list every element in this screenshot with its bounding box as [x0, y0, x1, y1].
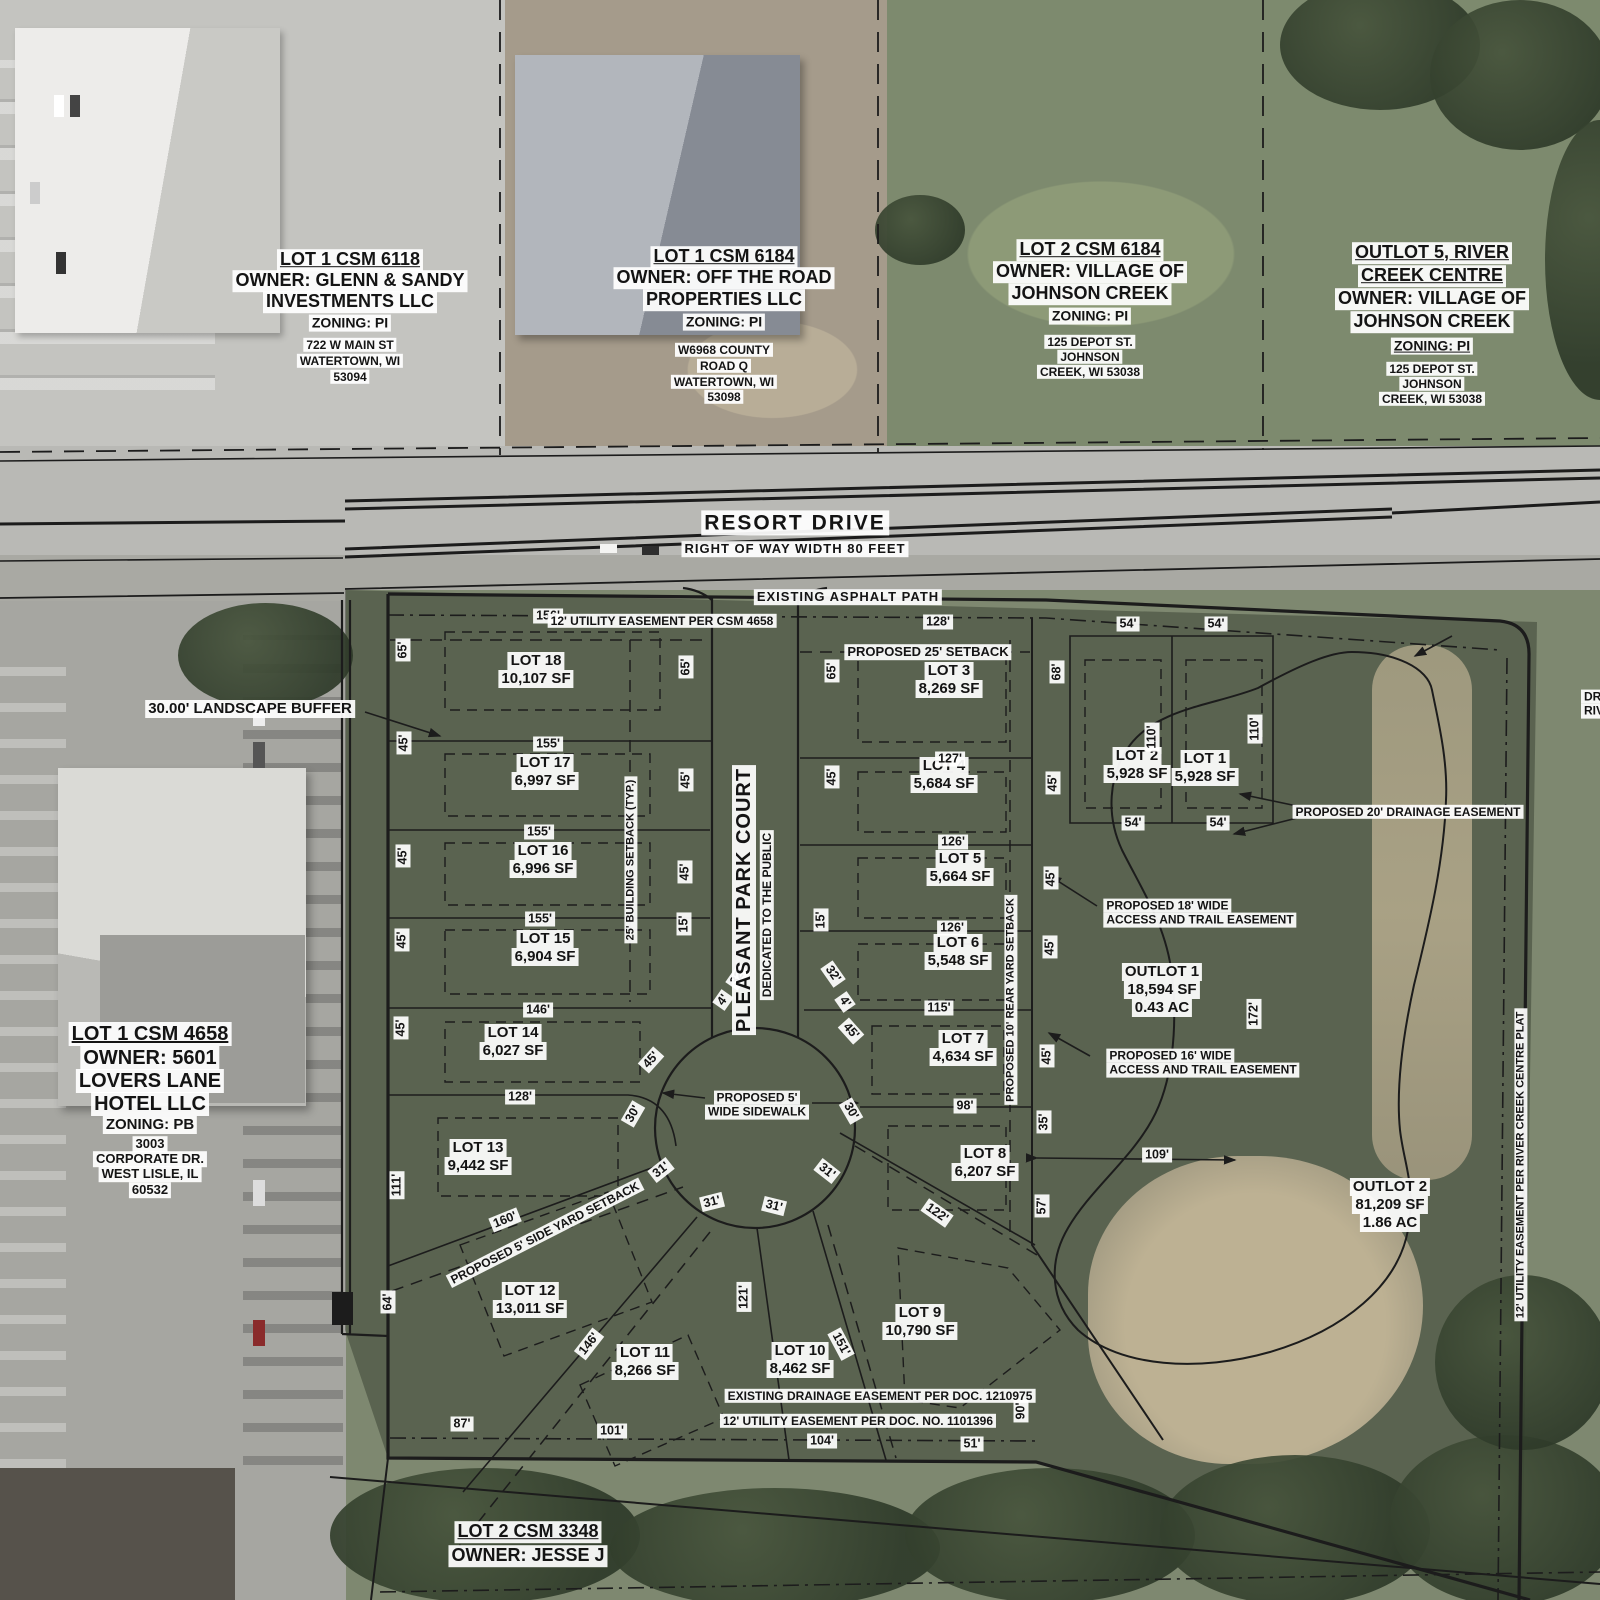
annotation-side-yard-setback: PROPOSED 5' SIDE YARD SETBACK [446, 1178, 645, 1289]
dimension-label-45-33: 45' [1043, 936, 1058, 959]
annotation-dedicated-to-the-public: DEDICATED TO THE PUBLIC [760, 830, 774, 1000]
annotation-proposed-18-access-trail-easement: PROPOSED 18' WIDEACCESS AND TRAIL EASEME… [1103, 899, 1296, 928]
dimension-label-146-21: 146' [523, 1003, 553, 1018]
annotation-existing-asphalt-path: EXISTING ASPHALT PATH [754, 589, 942, 605]
parcel-lot-1-csm-4658-line-4: ZONING: PB [103, 1116, 197, 1134]
dimension-label-31-51: 31' [699, 1192, 725, 1212]
parcel-lot-1-csm-6118-line-6: 53094 [330, 370, 369, 384]
dimension-label-109-48: 109' [1142, 1148, 1172, 1163]
lot-label-lot-10: LOT 108,462 SF [767, 1342, 834, 1378]
dimension-label-45-8: 45' [394, 1017, 409, 1040]
dimension-label-122-42: 122' [920, 1198, 953, 1227]
parcel-outlot-5-river-creek-centre-line-4: ZONING: PI [1391, 338, 1473, 355]
dimension-label-64-10: 64' [381, 1291, 396, 1314]
dimension-label-51-61: 51' [961, 1437, 984, 1452]
parcel-lot-1-csm-6184-line-0: LOT 1 CSM 6184 [650, 246, 797, 268]
parcel-outlot-5-river-creek-centre-line-1: CREEK CENTRE [1358, 265, 1506, 287]
parcel-lot-1-csm-6184-line-2: PROPERTIES LLC [643, 289, 805, 311]
parcel-lot-1-csm-6118-line-0: LOT 1 CSM 6118 [277, 249, 423, 271]
lot-label-lot-9: LOT 910,790 SF [882, 1304, 957, 1340]
annotation-rear-yard-setback: PROPOSED 10' REAR YARD SETBACK [1004, 895, 1017, 1105]
lot-label-lot-18: LOT 1810,107 SF [498, 652, 573, 688]
parcel-lot-2-csm-6184-line-5: JOHNSON [1057, 350, 1122, 364]
dimension-label-126-39: 126' [937, 921, 967, 936]
parcel-lot-1-csm-6184-line-6: WATERTOWN, WI [671, 375, 777, 389]
dimension-label-101-59: 101' [597, 1424, 627, 1439]
parcel-lot-1-csm-6184-line-7: 53098 [704, 390, 743, 404]
parcel-lot-1-csm-6184-line-4: W6968 COUNTY [675, 343, 773, 357]
parcel-lot-1-csm-6118-line-4: 722 W MAIN ST [303, 338, 396, 352]
parcel-lot-2-csm-6184-line-3: ZONING: PI [1049, 308, 1131, 325]
dimension-label-155-19: 155' [524, 825, 554, 840]
lot-label-lot-15: LOT 156,904 SF [512, 930, 579, 966]
dimension-label-128-22: 128' [505, 1090, 535, 1105]
dimension-label-110-45: 110' [1145, 722, 1160, 751]
dimension-label-98-41: 98' [954, 1099, 977, 1114]
dimension-label-32-27: 32' [820, 960, 845, 987]
dimension-label-4-28: 4' [834, 991, 855, 1013]
dimension-label-54-3: 54' [1205, 617, 1228, 632]
lot-label-lot-7: LOT 74,634 SF [930, 1030, 997, 1066]
lot-label-lot-3: LOT 38,269 SF [916, 662, 983, 698]
dimension-label-146-56: 146' [574, 1328, 604, 1361]
annotation-proposed-20-drainage-easement: PROPOSED 20' DRAINAGE EASEMENT [1293, 805, 1524, 819]
dimension-label-54-2: 54' [1117, 617, 1140, 632]
dimension-label-45-29: 45' [838, 1017, 864, 1044]
annotation-utility-easement-csm-4658: 12' UTILITY EASEMENT PER CSM 4658 [548, 614, 777, 628]
dimension-label-155-18: 155' [533, 737, 563, 752]
lot-label-lot-16: LOT 166,996 SF [510, 842, 577, 878]
parcel-lot-1-csm-6184-line-1: OWNER: OFF THE ROAD [614, 267, 835, 289]
dimension-label-30-49: 30' [621, 1100, 645, 1127]
annotation-utility-easement-river-creek-centre-plat: 12' UTILITY EASEMENT PER RIVER CREEK CEN… [1514, 1009, 1527, 1322]
dimension-label-54-44: 54' [1207, 816, 1230, 831]
parcel-lot-2-csm-6184-line-4: 125 DEPOT ST. [1044, 335, 1135, 349]
parcel-outlot-5-river-creek-centre-line-2: OWNER: VILLAGE OF [1335, 288, 1529, 310]
parcel-lot-1-csm-4658-line-3: HOTEL LLC [91, 1092, 209, 1116]
dimension-label-65-24: 65' [825, 660, 840, 683]
dimension-label-115-40: 115' [924, 1001, 953, 1016]
dimension-label-65-11: 65' [679, 656, 694, 679]
dimension-label-31-50: 31' [647, 1157, 674, 1183]
annotation-utility-easement-doc-1101396: 12' UTILITY EASEMENT PER DOC. NO. 110139… [720, 1414, 996, 1428]
lot-label-lot-14: LOT 146,027 SF [480, 1024, 547, 1060]
parcel-lot-1-csm-4658-line-6: CORPORATE DR. [93, 1151, 207, 1167]
annotation-right-of-way-width: RIGHT OF WAY WIDTH 80 FEET [681, 541, 908, 557]
dimension-label-172-47: 172' [1247, 999, 1262, 1029]
plat-site-plan: LOT 1810,107 SFLOT 176,997 SFLOT 166,996… [0, 0, 1600, 1600]
annotation-building-setback-typ: 25' BUILDING SETBACK (TYP.) [624, 777, 637, 944]
lot-label-lot-6: LOT 65,548 SF [925, 934, 992, 970]
dimension-label-30-54: 30' [839, 1097, 863, 1124]
parcel-lot-1-csm-4658-line-8: 60532 [129, 1182, 171, 1198]
lot-label-lot-12: LOT 1213,011 SF [493, 1282, 567, 1318]
plat-labels: LOT 1810,107 SFLOT 176,997 SFLOT 166,996… [0, 0, 1600, 1600]
parcel-lot-1-csm-4658-line-2: LOVERS LANE [76, 1069, 224, 1093]
parcel-lot-1-csm-4658-line-5: 3003 [133, 1136, 168, 1152]
dimension-label-15-26: 15' [814, 909, 829, 932]
dimension-label-68-30: 68' [1050, 661, 1065, 684]
dimension-label-87-58: 87' [451, 1417, 474, 1432]
lot-label-lot-11: LOT 118,266 SF [612, 1344, 679, 1380]
parcel-lot-1-csm-4658-line-1: OWNER: 5601 [80, 1046, 219, 1070]
dimension-label-110-46: 110' [1248, 714, 1263, 743]
dimension-label-45-7: 45' [395, 929, 410, 952]
lot-label-lot-17: LOT 176,997 SF [512, 754, 579, 790]
dimension-label-121-55: 121' [737, 1282, 752, 1312]
annotation-resort-drive-name: RESORT DRIVE [701, 510, 889, 535]
parcel-outlot-5-river-creek-centre-line-5: 125 DEPOT ST. [1386, 362, 1477, 376]
parcel-lot-2-csm-3348-line-0: LOT 2 CSM 3348 [454, 1521, 601, 1543]
parcel-lot-1-csm-6184-line-5: ROAD Q [697, 359, 751, 373]
parcel-lot-1-csm-6118-line-3: ZONING: PI [309, 315, 391, 332]
parcel-lot-1-csm-6118-line-1: OWNER: GLENN & SANDY [233, 270, 468, 292]
parcel-lot-1-csm-6184-line-3: ZONING: PI [683, 314, 765, 331]
dimension-label-35-35: 35' [1037, 1111, 1052, 1134]
parcel-lot-1-csm-4658-line-7: WEST LISLE, IL [99, 1166, 202, 1182]
lot-label-lot-2: LOT 25,928 SF [1104, 747, 1171, 783]
dimension-label-15-14: 15' [677, 913, 692, 936]
parcel-lot-2-csm-6184-line-0: LOT 2 CSM 6184 [1016, 239, 1163, 261]
dimension-label-127-37: 127' [935, 752, 965, 767]
annotation-landscape-buffer: 30.00' LANDSCAPE BUFFER [145, 700, 355, 718]
dimension-label-45-5: 45' [397, 732, 412, 755]
parcel-lot-2-csm-3348-line-1: OWNER: JESSE J [448, 1545, 607, 1567]
annotation-edge-cutoff-text: DRRIV [1581, 690, 1600, 719]
dimension-label-65-4: 65' [396, 639, 411, 662]
parcel-outlot-5-river-creek-centre-line-0: OUTLOT 5, RIVER [1352, 242, 1512, 264]
lot-label-lot-5: LOT 55,664 SF [927, 850, 994, 886]
parcel-lot-1-csm-4658-line-0: LOT 1 CSM 4658 [69, 1022, 232, 1046]
dimension-label-45-13: 45' [678, 861, 693, 884]
dimension-label-45-6: 45' [396, 845, 411, 868]
dimension-label-31-53: 31' [813, 1158, 840, 1184]
dimension-label-128-1: 128' [923, 615, 953, 630]
dimension-label-45-31: 45' [1046, 772, 1061, 795]
annotation-proposed-5-sidewalk: PROPOSED 5'WIDE SIDEWALK [705, 1091, 809, 1120]
dimension-label-126-38: 126' [938, 835, 968, 850]
dimension-label-45-25: 45' [825, 766, 840, 789]
dimension-label-54-43: 54' [1122, 816, 1145, 831]
dimension-label-45-34: 45' [1040, 1045, 1055, 1068]
parcel-lot-2-csm-6184-line-6: CREEK, WI 53038 [1037, 365, 1143, 379]
parcel-outlot-5-river-creek-centre-line-7: CREEK, WI 53038 [1379, 392, 1485, 406]
dimension-label-31-52: 31' [761, 1196, 787, 1216]
parcel-lot-1-csm-6118-line-5: WATERTOWN, WI [297, 354, 403, 368]
lot-label-lot-13: LOT 139,442 SF [445, 1139, 512, 1175]
lot-label-lot-1: LOT 15,928 SF [1172, 750, 1239, 786]
dimension-label-111-9: 111' [390, 1171, 405, 1199]
dimension-label-4-16: 4' [712, 989, 733, 1011]
dimension-label-45-12: 45' [679, 769, 694, 792]
annotation-proposed-16-access-trail-easement: PROPOSED 16' WIDEACCESS AND TRAIL EASEME… [1106, 1049, 1299, 1078]
annotation-pleasant-park-court-name: PLEASANT PARK COURT [732, 765, 756, 1035]
annotation-existing-drainage-easement-doc: EXISTING DRAINAGE EASEMENT PER DOC. 1210… [725, 1389, 1036, 1403]
outlot-label-outlot-1: OUTLOT 118,594 SF0.43 AC [1122, 963, 1202, 1017]
dimension-label-57-36: 57' [1035, 1195, 1050, 1218]
parcel-lot-2-csm-6184-line-2: JOHNSON CREEK [1008, 283, 1171, 305]
lot-label-lot-8: LOT 86,207 SF [952, 1145, 1019, 1181]
dimension-label-45-17: 45' [638, 1046, 664, 1073]
parcel-outlot-5-river-creek-centre-line-3: JOHNSON CREEK [1350, 311, 1513, 333]
dimension-label-45-32: 45' [1044, 867, 1059, 890]
outlot-label-outlot-2: OUTLOT 281,209 SF1.86 AC [1350, 1178, 1430, 1232]
annotation-proposed-25-setback: PROPOSED 25' SETBACK [844, 644, 1011, 660]
parcel-lot-1-csm-6118-line-2: INVESTMENTS LLC [263, 291, 437, 313]
dimension-label-155-20: 155' [525, 912, 555, 927]
dimension-label-104-60: 104' [807, 1434, 837, 1449]
parcel-lot-2-csm-6184-line-1: OWNER: VILLAGE OF [993, 261, 1187, 283]
parcel-outlot-5-river-creek-centre-line-6: JOHNSON [1399, 377, 1464, 391]
dimension-label-160-23: 160' [488, 1207, 521, 1232]
